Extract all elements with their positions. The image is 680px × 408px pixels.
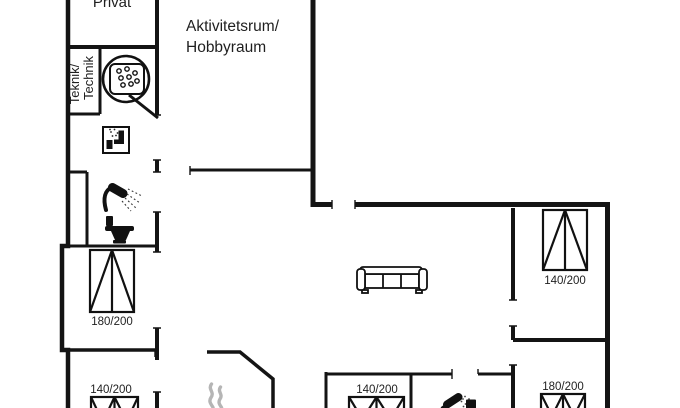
room-label-activity-line2: Hobbyraum (186, 39, 266, 56)
exterior-wall-left (62, 0, 68, 408)
bed-symbol-center-bottom (349, 397, 404, 408)
bed-size-label: 140/200 (544, 275, 586, 287)
wall-fireplace-nook (207, 352, 273, 408)
toilet-icon (105, 216, 134, 244)
room-label-privat: Privat (93, 0, 132, 11)
bed-symbol-left-middle (90, 250, 134, 312)
room-label-technik-line2: Technik (81, 55, 96, 100)
room-label-activity-line1: Aktivitetsrum/ (186, 18, 280, 35)
toilet-icon-2 (466, 400, 476, 408)
walls-bathroom1 (62, 172, 157, 246)
wall-activity-right-thick (313, 0, 332, 205)
bed-size-label: 140/200 (356, 384, 398, 396)
bed-size-label: 140/200 (90, 384, 132, 396)
bed-symbol-left-bottom (91, 397, 138, 408)
shower-icon (104, 187, 142, 211)
bed-size-label: 180/200 (91, 316, 133, 328)
washing-machine-icon (103, 127, 129, 153)
hot-tub-icon (103, 56, 149, 102)
bed-size-label: 180/200 (542, 381, 584, 393)
bed-symbol-right-bottom (541, 394, 585, 408)
floor-plan: Privat Aktivitetsrum/ Hobbyraum Teknik/ … (0, 0, 680, 408)
fireplace-flame-icon (210, 384, 222, 408)
walls (62, 0, 608, 408)
floor-plan-drawing: Privat Aktivitetsrum/ Hobbyraum Teknik/ … (0, 0, 680, 408)
room-label-technik-line1: Teknik/ (67, 63, 82, 104)
sofa-icon (357, 267, 427, 293)
bed-symbol-right-top (543, 210, 587, 270)
